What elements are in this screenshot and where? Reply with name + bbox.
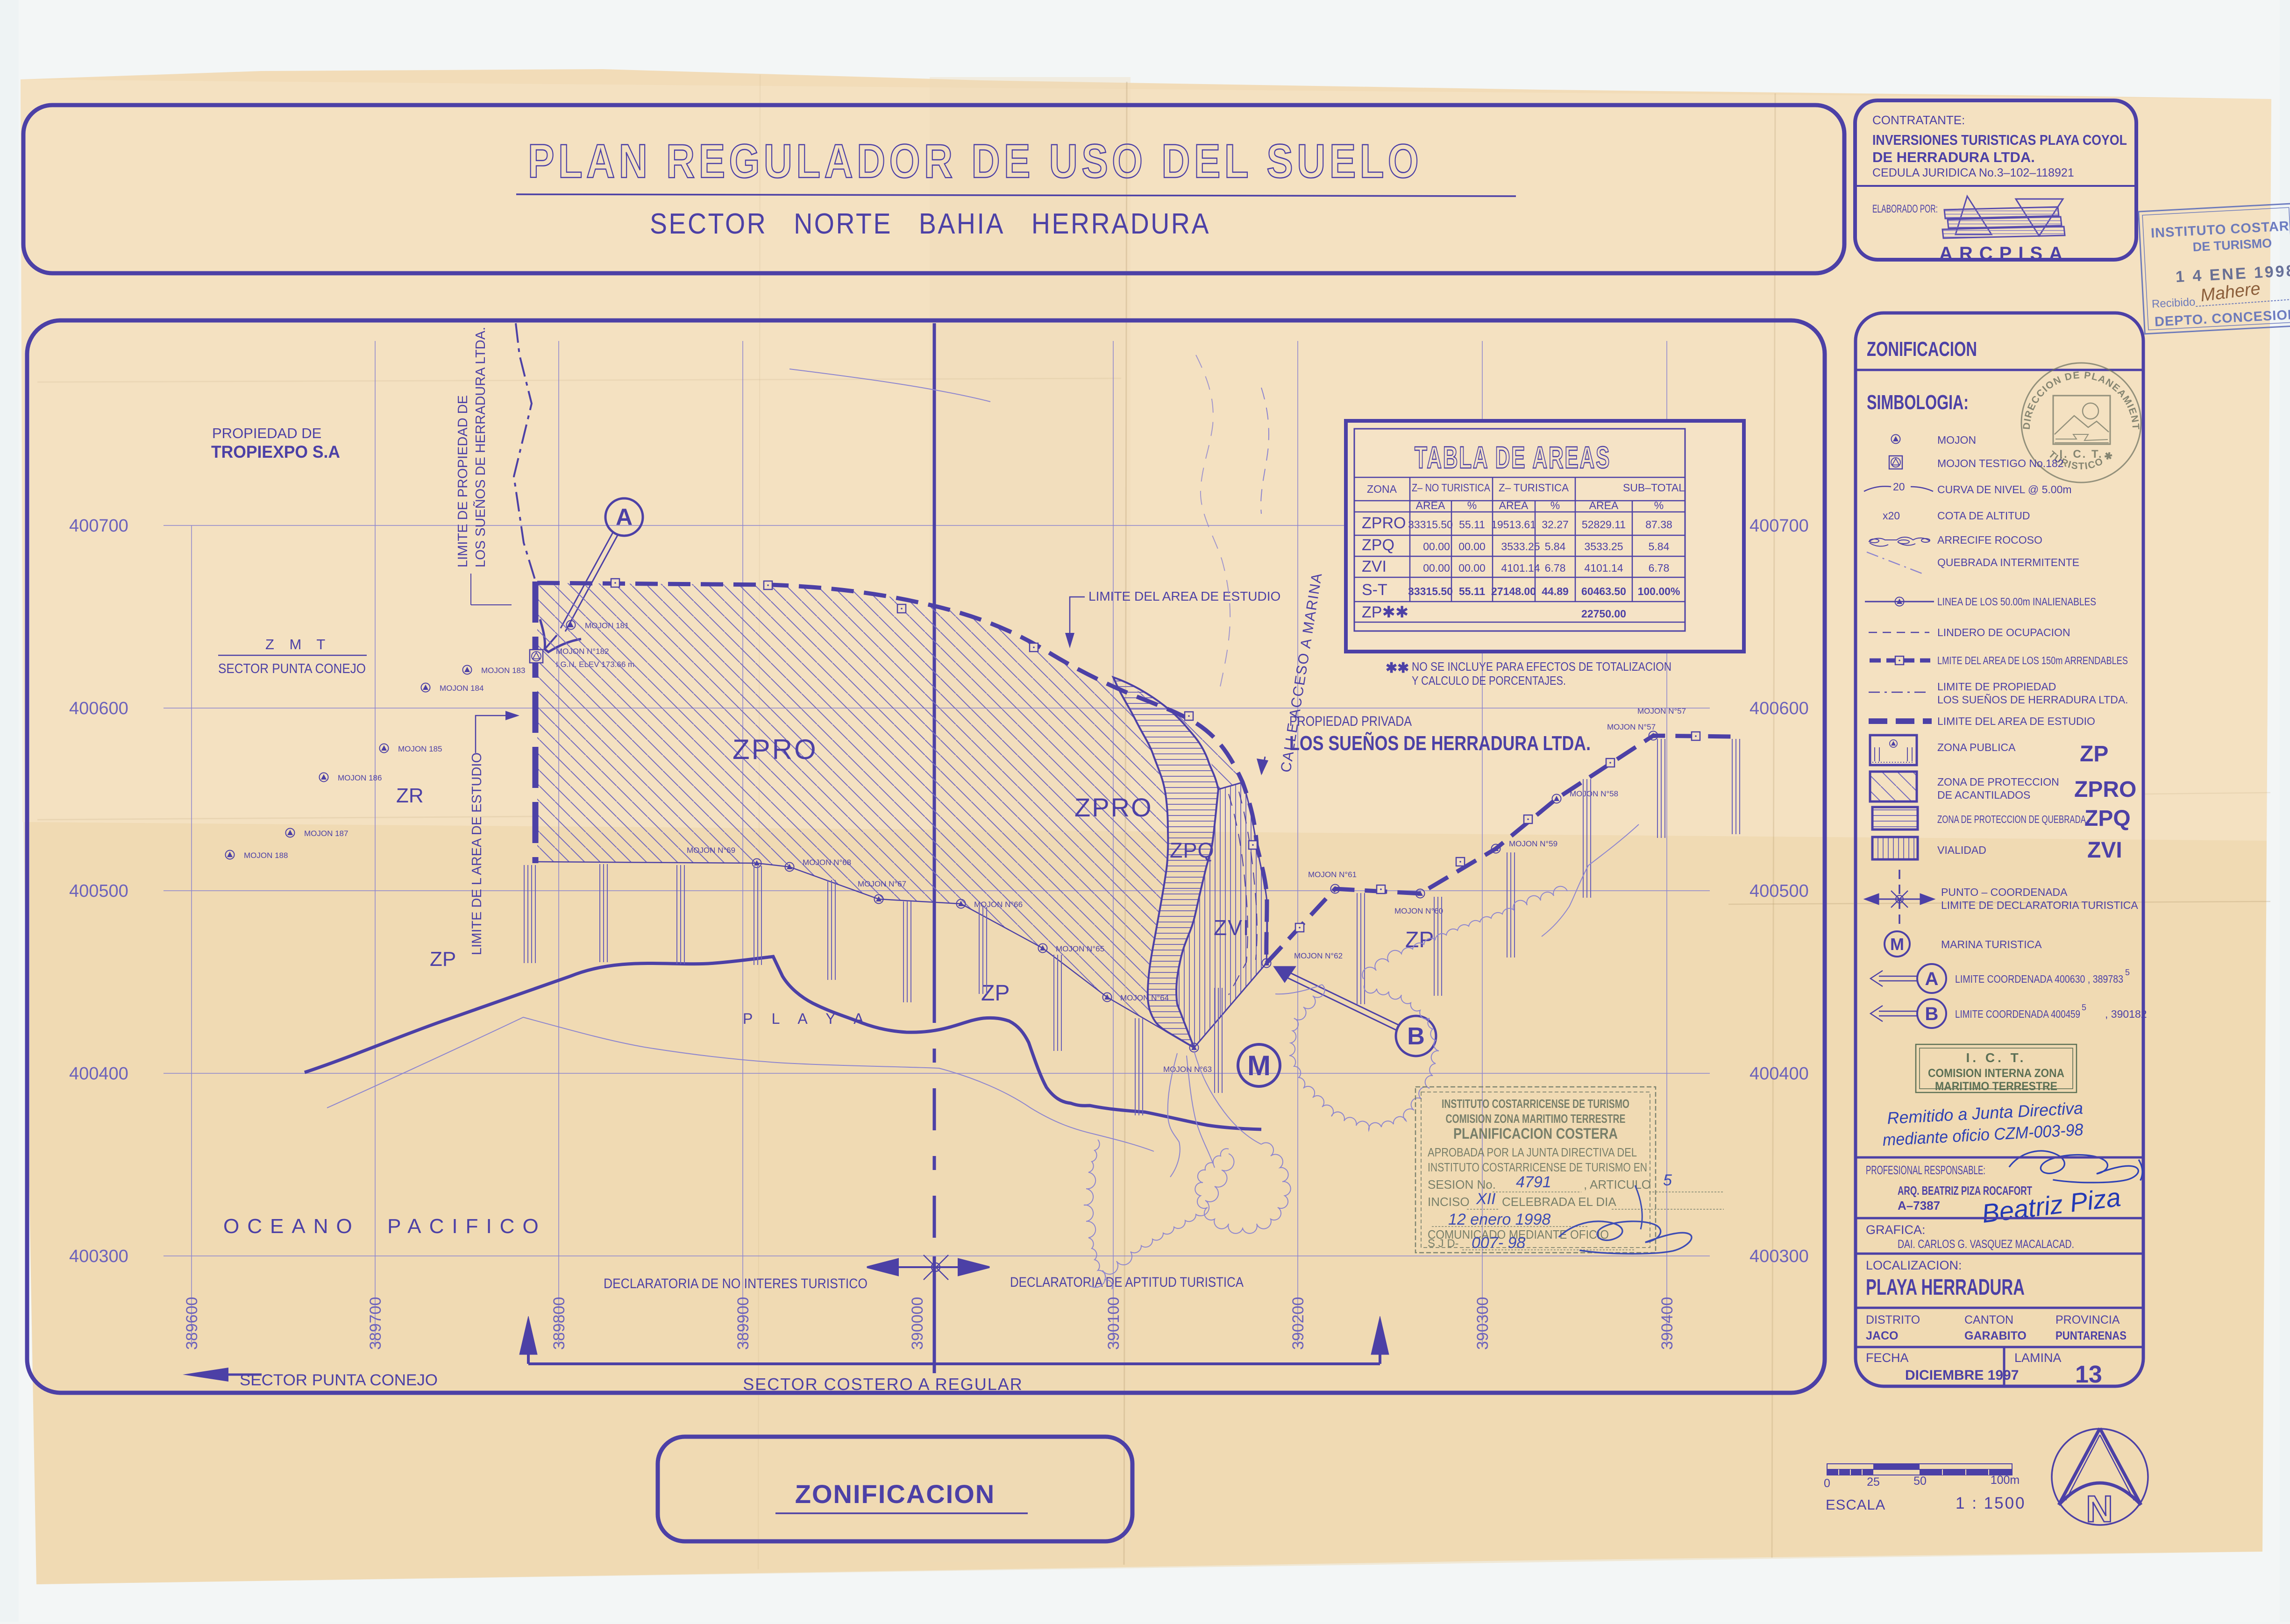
svg-text:400400: 400400	[1750, 1064, 1809, 1084]
svg-text:LIMITE DE L AREA DE ESTUDIO: LIMITE DE L AREA DE ESTUDIO	[469, 752, 484, 955]
svg-text:%: %	[1654, 499, 1664, 511]
svg-text:ZPRO: ZPRO	[733, 734, 818, 765]
svg-text:389600: 389600	[183, 1297, 201, 1350]
svg-text:4101.14: 4101.14	[1584, 562, 1623, 574]
svg-text:%: %	[1550, 499, 1560, 511]
svg-text:MOJON N°69: MOJON N°69	[687, 846, 735, 855]
svg-text:PLAYA HERRADURA: PLAYA HERRADURA	[1866, 1275, 2025, 1300]
svg-text:FECHA: FECHA	[1866, 1351, 1909, 1365]
svg-text:CELEBRADA EL DIA: CELEBRADA EL DIA	[1502, 1195, 1616, 1209]
svg-text:MOJON N°60: MOJON N°60	[1394, 907, 1443, 915]
svg-text:12 enero 1998: 12 enero 1998	[1448, 1211, 1550, 1228]
svg-text:DICIEMBRE 1997: DICIEMBRE 1997	[1905, 1368, 2019, 1383]
svg-text:389700: 389700	[367, 1297, 384, 1350]
svg-text:MOJON: MOJON	[1937, 434, 1976, 446]
svg-text:B: B	[1407, 1023, 1425, 1050]
svg-text:5: 5	[2125, 968, 2130, 977]
svg-text:SECTOR PUNTA CONEJO: SECTOR PUNTA CONEJO	[240, 1371, 438, 1389]
svg-text:LOCALIZACION:: LOCALIZACION:	[1866, 1258, 1962, 1272]
svg-text:ZPQ: ZPQ	[1362, 536, 1394, 554]
svg-text:5.84: 5.84	[1649, 540, 1670, 553]
svg-text:ZPQ: ZPQ	[2084, 806, 2131, 831]
svg-text:CONTRATANTE:: CONTRATANTE:	[1872, 113, 1965, 127]
svg-text:55.11: 55.11	[1459, 518, 1485, 531]
svg-text:LIMITE COORDENADA 400459: LIMITE COORDENADA 400459	[1955, 1008, 2080, 1020]
svg-text:SIMBOLOGIA:: SIMBOLOGIA:	[1867, 391, 1969, 414]
svg-text:MOJON N°61: MOJON N°61	[1308, 870, 1357, 879]
svg-text:LOS SUEÑOS DE HERRADURA LTDA.: LOS SUEÑOS DE HERRADURA LTDA.	[1289, 731, 1591, 755]
svg-text:4791: 4791	[1516, 1173, 1551, 1191]
svg-text:DE ACANTILADOS: DE ACANTILADOS	[1937, 789, 2030, 801]
svg-text:400400: 400400	[69, 1064, 128, 1084]
svg-text:ZONA PUBLICA: ZONA PUBLICA	[1937, 741, 2016, 753]
svg-text:400300: 400300	[1750, 1247, 1809, 1266]
svg-text:MOJON TESTIGO No.182: MOJON TESTIGO No.182	[1937, 457, 2064, 469]
svg-text:ZVI: ZVI	[1214, 915, 1250, 940]
svg-text:4101.14: 4101.14	[1501, 562, 1540, 574]
svg-text:390300: 390300	[1474, 1297, 1492, 1350]
svg-text:A: A	[616, 504, 633, 530]
svg-text:390400: 390400	[1658, 1297, 1676, 1350]
svg-text:Z M T: Z M T	[265, 636, 331, 652]
svg-text:LOS SUEÑOS DE HERRADURA LTDA.: LOS SUEÑOS DE HERRADURA LTDA.	[1937, 694, 2128, 706]
svg-text:AREA: AREA	[1589, 499, 1619, 511]
svg-text:ZPRO: ZPRO	[2074, 777, 2136, 802]
svg-text:MOJON 187: MOJON 187	[304, 829, 348, 838]
svg-text:MOJON N°65: MOJON N°65	[1056, 944, 1104, 953]
svg-text:SECTOR NORTE BAHIA HERRA: SECTOR NORTE BAHIA HERRADURA	[650, 208, 1210, 240]
svg-text:MOJON 186: MOJON 186	[338, 773, 382, 782]
svg-text:DECLARATORIA DE NO INTERES TUR: DECLARATORIA DE NO INTERES TURISTICO	[604, 1276, 868, 1291]
svg-text:COMISION INTERNA ZONA: COMISION INTERNA ZONA	[1928, 1067, 2064, 1080]
svg-text:MARINA TURISTICA: MARINA TURISTICA	[1941, 938, 2042, 950]
svg-text:MOJON N°57: MOJON N°57	[1607, 723, 1656, 731]
svg-text:60463.50: 60463.50	[1581, 585, 1626, 597]
svg-text:ZR: ZR	[396, 784, 424, 807]
svg-text:INSTITUTO COSTARRICENSE DE TUR: INSTITUTO COSTARRICENSE DE TURISMO EN	[1428, 1160, 1647, 1174]
svg-text:NO SE INCLUYE PARA EFECTOS DE: NO SE INCLUYE PARA EFECTOS DE TOTALIZACI…	[1412, 660, 1671, 674]
svg-text:B: B	[1925, 1004, 1939, 1024]
svg-text:OCEANO PACIFICO: OCEANO PACIFICO	[223, 1215, 547, 1238]
svg-text:ZPQ: ZPQ	[1170, 838, 1215, 862]
svg-text:AREA: AREA	[1416, 499, 1445, 511]
svg-text:ARCPISA: ARCPISA	[1939, 243, 2069, 264]
svg-text:SESION No.: SESION No.	[1428, 1177, 1496, 1191]
svg-text:19513.61: 19513.61	[1491, 518, 1536, 531]
svg-text:Y CALCULO DE PORCENTAJES.: Y CALCULO DE PORCENTAJES.	[1412, 674, 1566, 688]
svg-text:TABLA DE AREAS: TABLA DE AREAS	[1415, 440, 1611, 475]
svg-text:S-T: S-T	[1362, 581, 1387, 599]
svg-text:DE HERRADURA LTDA.: DE HERRADURA LTDA.	[1872, 149, 2035, 165]
svg-text:GRAFICA:: GRAFICA:	[1866, 1223, 1926, 1237]
svg-text:3533.25: 3533.25	[1501, 540, 1540, 553]
svg-text:✱✱: ✱✱	[1386, 660, 1409, 676]
svg-text:100m: 100m	[1991, 1474, 2020, 1487]
svg-text:MOJON 184: MOJON 184	[440, 684, 484, 693]
svg-text:LIMITE DEL AREA DE ESTUDIO: LIMITE DEL AREA DE ESTUDIO	[1937, 715, 2095, 727]
svg-text:52829.11: 52829.11	[1582, 518, 1626, 531]
svg-text:ZP: ZP	[981, 981, 1010, 1006]
svg-text:INVERSIONES TURISTICAS PLAYA C: INVERSIONES TURISTICAS PLAYA COYOL	[1872, 132, 2127, 148]
svg-text:ESCALA: ESCALA	[1826, 1496, 1885, 1513]
svg-text:5: 5	[2082, 1003, 2086, 1012]
svg-text:QUEBRADA INTERMITENTE: QUEBRADA INTERMITENTE	[1937, 556, 2079, 568]
svg-text:389800: 389800	[550, 1297, 568, 1350]
svg-text:00.00: 00.00	[1458, 540, 1486, 553]
svg-text:AREA: AREA	[1499, 499, 1529, 511]
svg-text:A: A	[1925, 969, 1939, 989]
svg-text:ZP: ZP	[430, 948, 456, 971]
svg-text:MOJON 185: MOJON 185	[398, 745, 442, 753]
svg-text:PUNTARENAS: PUNTARENAS	[2055, 1329, 2126, 1342]
svg-text:ZPRO: ZPRO	[1074, 793, 1153, 822]
svg-text:M: M	[1247, 1050, 1271, 1081]
svg-text:400600: 400600	[1750, 699, 1809, 718]
svg-text:33315.50: 33315.50	[1408, 518, 1453, 531]
svg-text:100.00%: 100.00%	[1638, 585, 1680, 597]
svg-text:MOJON N°67: MOJON N°67	[858, 879, 906, 888]
svg-text:DECLARATORIA DE APTITUD TURIST: DECLARATORIA DE APTITUD TURISTICA	[1010, 1275, 1244, 1290]
svg-text:00.00: 00.00	[1458, 562, 1486, 574]
svg-text:ZONA DE PROTECCION: ZONA DE PROTECCION	[1937, 776, 2059, 788]
svg-text:ZPRO: ZPRO	[1362, 514, 1406, 532]
svg-text:400500: 400500	[69, 881, 128, 901]
svg-text:P L A Y A: P L A Y A	[743, 1010, 871, 1027]
svg-text:6.78: 6.78	[1545, 562, 1566, 574]
svg-text:LINEA DE LOS 50.00m INALIENABL: LINEA DE LOS 50.00m INALIENABLES	[1937, 596, 2096, 608]
svg-text:%: %	[1467, 499, 1477, 511]
svg-text:33315.50: 33315.50	[1408, 585, 1453, 597]
svg-text:COTA DE ALTITUD: COTA DE ALTITUD	[1937, 510, 2030, 522]
svg-text:Z– NO TURISTICA: Z– NO TURISTICA	[1412, 482, 1491, 494]
svg-text:N: N	[2086, 1488, 2113, 1530]
svg-text:M: M	[1890, 935, 1904, 954]
svg-text:27148.00: 27148.00	[1491, 585, 1536, 597]
svg-text:00.00: 00.00	[1423, 540, 1450, 553]
svg-text:00.00: 00.00	[1423, 562, 1450, 574]
svg-text:PROPIEDAD DE: PROPIEDAD DE	[212, 425, 321, 441]
svg-text:MOJON N°57: MOJON N°57	[1637, 707, 1686, 716]
svg-text:COMISION ZONA MARITIMO TERREST: COMISION ZONA MARITIMO TERRESTRE	[1446, 1112, 1626, 1126]
svg-text:13: 13	[2075, 1361, 2102, 1388]
svg-text:MOJON N°59: MOJON N°59	[1509, 839, 1557, 848]
svg-text:400300: 400300	[69, 1247, 128, 1266]
svg-text:INCISO: INCISO	[1428, 1195, 1470, 1209]
svg-text:400700: 400700	[1750, 516, 1809, 536]
svg-text:22750.00: 22750.00	[1581, 608, 1626, 620]
svg-text:ARRECIFE ROCOSO: ARRECIFE ROCOSO	[1937, 534, 2042, 546]
svg-text:ZONA DE PROTECCION DE QUEBRADA: ZONA DE PROTECCION DE QUEBRADA	[1937, 813, 2086, 825]
svg-text:MOJON 183: MOJON 183	[481, 666, 525, 675]
svg-text:ZONIFICACION: ZONIFICACION	[1867, 338, 1977, 361]
svg-text:CANTON: CANTON	[1964, 1313, 2013, 1326]
svg-text:389900: 389900	[734, 1297, 752, 1350]
svg-text:LOS SUEÑOS DE HERRADURA LTDA.: LOS SUEÑOS DE HERRADURA LTDA.	[472, 327, 488, 567]
svg-text:S J D-: S J D-	[1428, 1237, 1459, 1250]
svg-text:6.78: 6.78	[1649, 562, 1670, 574]
svg-text:ZVI: ZVI	[2087, 838, 2122, 863]
svg-text:ZONIFICACION: ZONIFICACION	[795, 1479, 995, 1509]
svg-text:MOJON N°62: MOJON N°62	[1294, 951, 1343, 960]
svg-text:MOJON N°58: MOJON N°58	[1570, 789, 1618, 798]
svg-text:LIMITE DE DECLARATORIA TURISTI: LIMITE DE DECLARATORIA TURISTICA	[1941, 899, 2138, 911]
svg-text:INSTITUTO COSTARRICENSE DE TUR: INSTITUTO COSTARRICENSE DE TURISMO	[1442, 1097, 1629, 1111]
svg-text:5.84: 5.84	[1545, 540, 1566, 553]
svg-text:SECTOR PUNTA CONEJO: SECTOR PUNTA CONEJO	[218, 661, 366, 676]
svg-text:400500: 400500	[1750, 881, 1809, 901]
svg-text:SUB–TOTAL: SUB–TOTAL	[1623, 482, 1685, 494]
svg-text:390200: 390200	[1289, 1297, 1307, 1350]
svg-text:LIMITE DEL AREA DE ESTUDIO: LIMITE DEL AREA DE ESTUDIO	[1088, 589, 1280, 603]
svg-text:0: 0	[1824, 1477, 1830, 1490]
svg-text:LINDERO DE OCUPACION: LINDERO DE OCUPACION	[1937, 626, 2070, 638]
svg-text:390000: 390000	[909, 1297, 926, 1350]
svg-text:PROPIEDAD PRIVADA: PROPIEDAD PRIVADA	[1289, 714, 1412, 729]
svg-text:MOJON 188: MOJON 188	[244, 851, 288, 860]
svg-text:LAMINA: LAMINA	[2014, 1351, 2062, 1365]
svg-text:MARITIMO TERRESTRE: MARITIMO TERRESTRE	[1935, 1080, 2057, 1093]
svg-text:, ARTICULO: , ARTICULO	[1584, 1177, 1651, 1191]
svg-text:ZP✱✱: ZP✱✱	[1362, 603, 1408, 621]
svg-text:50: 50	[1913, 1475, 1927, 1488]
svg-text:LMITE DEL AREA DE LOS 150m ARR: LMITE DEL AREA DE LOS 150m ARRENDABLES	[1937, 654, 2128, 667]
svg-text:DAI. CARLOS G. VASQUEZ MACALAC: DAI. CARLOS G. VASQUEZ MACALACAD.	[1898, 1238, 2074, 1251]
svg-text:87.38: 87.38	[1645, 518, 1672, 531]
svg-text:55.11: 55.11	[1459, 585, 1485, 597]
svg-text:PLANIFICACION COSTERA: PLANIFICACION COSTERA	[1453, 1125, 1618, 1142]
svg-text:Z– TURISTICA: Z– TURISTICA	[1499, 482, 1569, 494]
svg-text:LIMITE DE PROPIEDAD DE: LIMITE DE PROPIEDAD DE	[455, 395, 470, 567]
svg-text:, 390182: , 390182	[2105, 1008, 2147, 1020]
svg-text:JACO: JACO	[1866, 1329, 1898, 1342]
svg-text:DISTRITO: DISTRITO	[1866, 1313, 1920, 1326]
svg-text:ZP: ZP	[1405, 928, 1434, 952]
svg-text:ZP: ZP	[2080, 742, 2108, 766]
svg-text:A–7387: A–7387	[1898, 1198, 1940, 1213]
svg-text:5: 5	[1663, 1171, 1672, 1189]
svg-text:ZVI: ZVI	[1362, 558, 1387, 575]
svg-text:ZONA: ZONA	[1367, 483, 1397, 495]
svg-text:SECTOR COSTERO A REGULAR: SECTOR COSTERO A REGULAR	[743, 1375, 1023, 1394]
svg-text:VIALIDAD: VIALIDAD	[1937, 844, 1986, 856]
svg-text:XII: XII	[1476, 1190, 1496, 1208]
svg-text:CURVA DE NIVEL @ 5.00m: CURVA DE NIVEL @ 5.00m	[1937, 483, 2072, 496]
svg-text:PLAN REGULADOR DE USO DEL SUEL: PLAN REGULADOR DE USO DEL SUELO	[528, 135, 1422, 188]
svg-text:LIMITE DE PROPIEDAD: LIMITE DE PROPIEDAD	[1937, 681, 2056, 693]
svg-text:007- 98: 007- 98	[1472, 1234, 1525, 1252]
svg-text:LIMITE COORDENADA 400630 , 389: LIMITE COORDENADA 400630 , 389783	[1955, 973, 2123, 985]
svg-text:MOJON N°64: MOJON N°64	[1120, 993, 1169, 1002]
svg-text:MOJON N°68: MOJON N°68	[803, 858, 851, 867]
svg-text:Recibido: Recibido	[2151, 296, 2196, 311]
svg-text:GARABITO: GARABITO	[1964, 1329, 2027, 1342]
svg-text:PROVINCIA: PROVINCIA	[2055, 1313, 2120, 1326]
svg-text:20: 20	[1893, 481, 1905, 493]
svg-text:PROFESIONAL RESPONSABLE:: PROFESIONAL RESPONSABLE:	[1866, 1163, 1985, 1177]
svg-text:I. C. T.: I. C. T.	[1966, 1050, 2027, 1065]
svg-text:APROBADA POR LA JUNTA DIRECTIV: APROBADA POR LA JUNTA DIRECTIVA DEL	[1428, 1145, 1637, 1159]
svg-text:ELABORADO POR:: ELABORADO POR:	[1872, 203, 1938, 215]
svg-text:3533.25: 3533.25	[1584, 540, 1623, 553]
svg-text:390100: 390100	[1105, 1297, 1123, 1350]
svg-text:1 : 1500: 1 : 1500	[1956, 1494, 2026, 1512]
svg-text:CEDULA JURIDICA No.3–102–11892: CEDULA JURIDICA No.3–102–118921	[1872, 166, 2074, 179]
svg-text:x20: x20	[1883, 510, 1900, 522]
svg-text:PUNTO – COORDENADA: PUNTO – COORDENADA	[1941, 886, 2068, 898]
svg-text:TROPIEXPO S.A: TROPIEXPO S.A	[211, 442, 340, 461]
svg-text:25: 25	[1867, 1475, 1880, 1489]
svg-text:400600: 400600	[69, 699, 128, 718]
svg-text:44.89: 44.89	[1542, 585, 1569, 597]
svg-text:32.27: 32.27	[1542, 518, 1569, 531]
svg-text:MOJON N°66: MOJON N°66	[974, 900, 1023, 909]
svg-text:400700: 400700	[69, 516, 128, 536]
